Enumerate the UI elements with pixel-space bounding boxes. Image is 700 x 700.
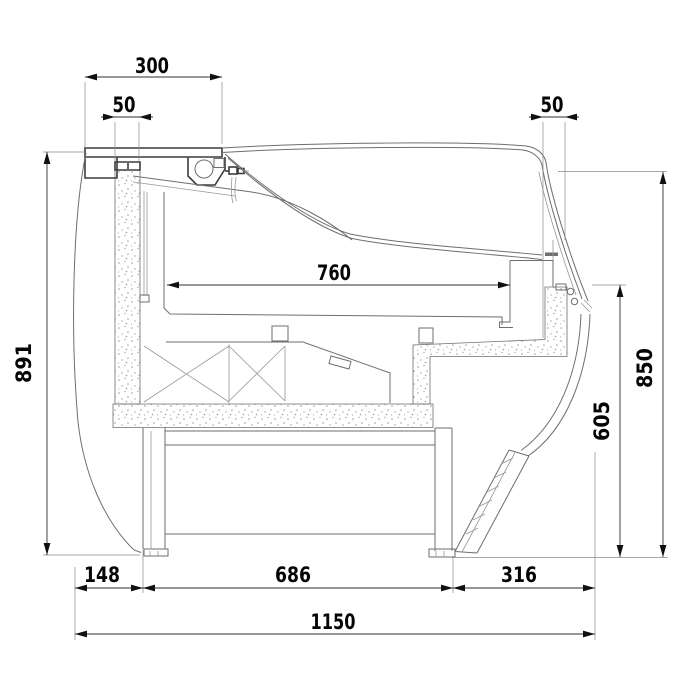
dim-total-depth-label: 1150 — [311, 610, 356, 634]
base-frame — [165, 431, 435, 534]
dim-rear-overhang-label: 148 — [84, 563, 120, 587]
dim-display-depth-label: 760 — [317, 261, 351, 285]
dim-glass-bottom-height-label: 605 — [590, 401, 614, 441]
bottom-insulation — [113, 404, 433, 428]
leveling-feet — [144, 549, 455, 557]
dim-front-height-label: 850 — [633, 348, 657, 388]
technical-drawing-page: 300 50 50 760 891 850 605 148 686 316 11… — [0, 0, 700, 700]
front-insulation — [413, 287, 567, 404]
canopy-and-front-glass — [222, 143, 588, 301]
dim-front-overhang-label: 316 — [501, 563, 537, 587]
counter-profile — [74, 143, 592, 557]
display-deck — [164, 192, 502, 403]
worktop — [85, 148, 222, 178]
front-pillar — [435, 428, 452, 551]
left-leg — [143, 428, 165, 549]
cross-braces — [144, 345, 285, 404]
rear-wall-insulation — [115, 162, 140, 404]
dim-rear-height-label: 891 — [12, 343, 36, 383]
dim-base-span-label: 686 — [275, 563, 311, 587]
dimension-annotations: 300 50 50 760 891 850 605 148 686 316 11… — [12, 54, 668, 640]
dim-rear-wall-thickness-label: 50 — [113, 93, 136, 117]
dim-front-wall-thickness-label: 50 — [541, 93, 564, 117]
ventilation-grille — [455, 450, 529, 553]
counter-cross-section-drawing: 300 50 50 760 891 850 605 148 686 316 11… — [0, 0, 700, 700]
dim-top-width-label: 300 — [135, 54, 169, 78]
fan-housing — [188, 157, 249, 185]
